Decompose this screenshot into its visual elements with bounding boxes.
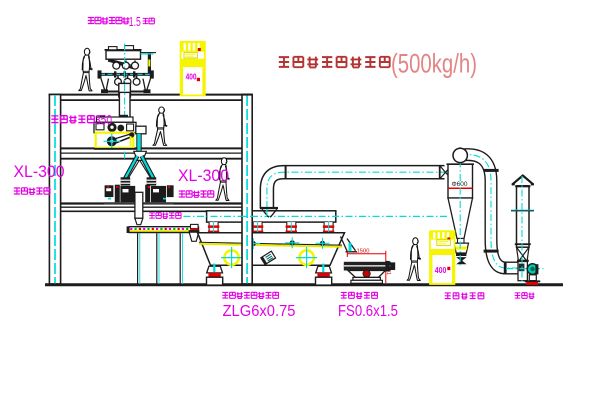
svg-text:XL-300: XL-300 — [178, 166, 229, 185]
svg-text:XL-300: XL-300 — [14, 162, 65, 181]
svg-text:(500kg/h): (500kg/h) — [391, 49, 477, 79]
svg-text:350: 350 — [95, 113, 112, 128]
svg-text:1500: 1500 — [357, 249, 370, 255]
svg-text:FS0.6x1.5: FS0.6x1.5 — [338, 303, 398, 320]
svg-text:ZLG6x0.75: ZLG6x0.75 — [223, 303, 296, 320]
svg-text:400: 400 — [435, 265, 447, 275]
svg-text:Φ600: Φ600 — [452, 182, 469, 188]
svg-text:400: 400 — [186, 72, 197, 82]
svg-text:1.5: 1.5 — [129, 14, 141, 29]
